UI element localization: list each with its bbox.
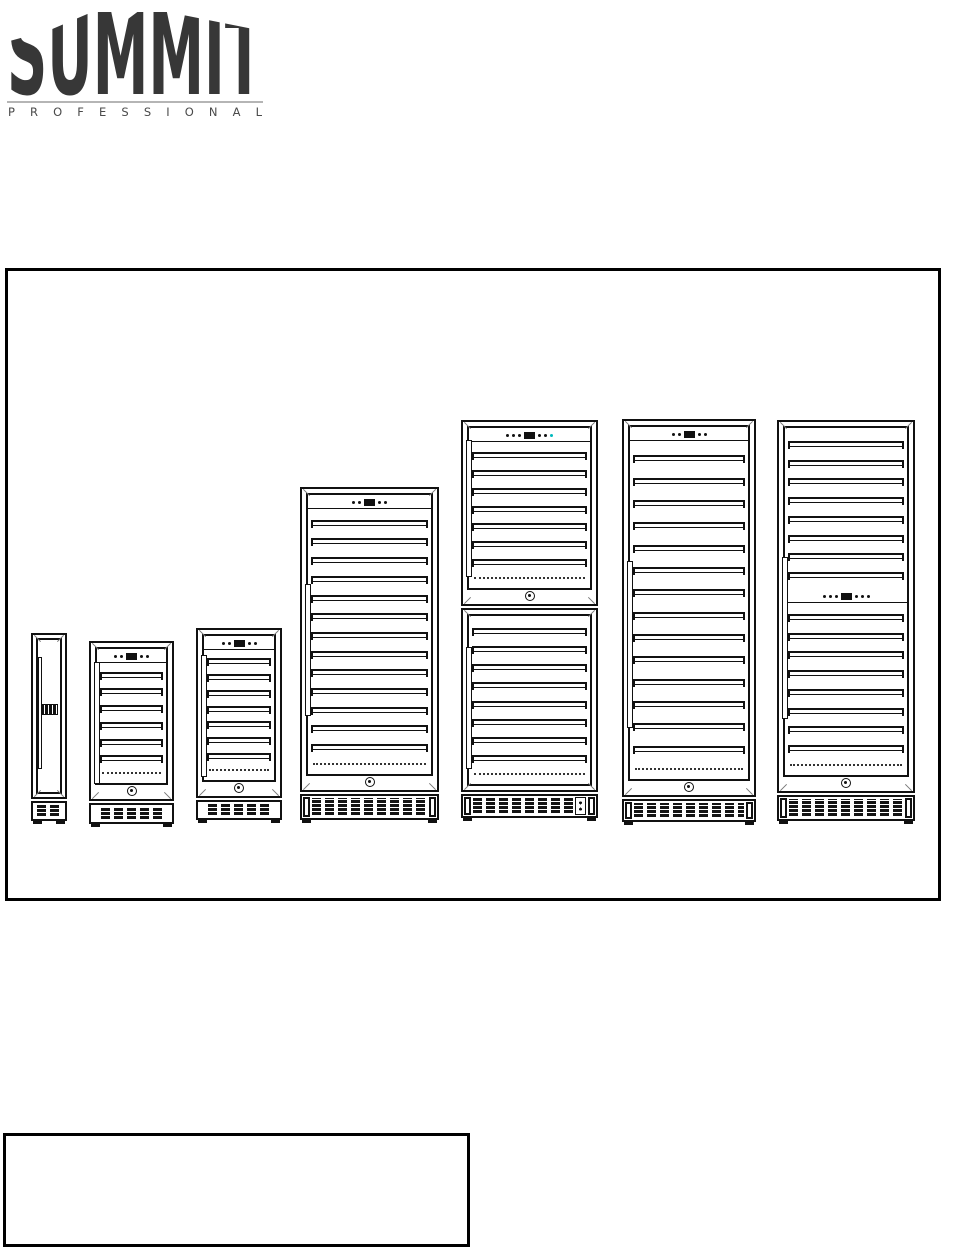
wine-shelf: [633, 567, 745, 575]
ventilation-base: [89, 803, 174, 824]
corner-bevel-line: [199, 789, 206, 796]
wine-shelf: [311, 725, 428, 733]
corner-bevel-line: [92, 792, 99, 799]
door-handle: [782, 557, 788, 719]
ventilation-base: [31, 801, 67, 821]
button-dot-icon: [823, 595, 826, 598]
wine-shelf: [207, 674, 271, 682]
button-dot-icon: [140, 655, 143, 658]
base-bracket: [780, 798, 787, 818]
glass-door-pane: [628, 425, 750, 781]
button-dot-icon: [352, 501, 355, 504]
foot: [198, 820, 207, 823]
wine-shelf: [472, 737, 587, 745]
button-dot-icon: [867, 595, 870, 598]
wine-shelf: [472, 488, 587, 496]
button-dot-icon: [855, 595, 858, 598]
corner-bevel-line: [780, 784, 787, 791]
button-dot-icon: [704, 433, 707, 436]
undercounter-wine-cellar: [196, 628, 282, 820]
wine-shelf: [311, 595, 428, 603]
ventilation-base: [196, 800, 282, 820]
control-panel: [630, 429, 748, 441]
wine-shelf: [311, 632, 428, 640]
door: [300, 487, 439, 792]
button-dot-icon: [254, 642, 257, 645]
vent-grille: [634, 803, 744, 818]
foot: [33, 821, 42, 824]
shelf-group: [207, 650, 271, 769]
display-icon: [524, 432, 535, 439]
fullsize-wine-cellar: [622, 419, 756, 822]
wine-shelf: [207, 658, 271, 666]
door: [31, 633, 67, 799]
wine-shelf: [311, 538, 428, 546]
wine-shelf: [472, 559, 587, 567]
logo-rule: [7, 101, 263, 103]
base-bracket: [464, 797, 471, 815]
control-panel: [785, 591, 907, 603]
wine-shelf: [788, 553, 904, 561]
button-dot-icon: [378, 501, 381, 504]
wine-shelf: [788, 614, 904, 622]
button-dot-icon: [678, 433, 681, 436]
corner-bevel-line: [746, 788, 753, 795]
shelf-group: [311, 509, 428, 763]
glass-door-pane: [95, 647, 168, 785]
wine-shelf: [633, 500, 745, 508]
bottle-row-line: [313, 763, 426, 772]
wine-shelf: [311, 557, 428, 565]
base-bracket: [905, 798, 912, 818]
wine-shelf: [633, 478, 745, 486]
wine-shelf: [311, 707, 428, 715]
wine-shelf: [472, 664, 587, 672]
corner-bevel-line: [272, 789, 279, 796]
wine-shelf: [788, 572, 904, 580]
button-dot-icon: [146, 655, 149, 658]
button-dot-icon: [248, 642, 251, 645]
wine-shelf: [788, 516, 904, 524]
ventilation-base: [622, 799, 756, 822]
door-handle: [94, 662, 100, 784]
wine-shelf: [633, 701, 745, 709]
product-lineup-panel: [5, 268, 941, 901]
door: [461, 608, 598, 792]
wine-shelf: [633, 723, 745, 731]
shelf-group: [472, 618, 587, 773]
wine-shelf: [472, 470, 587, 478]
wine-shelf: [633, 612, 745, 620]
wine-shelf: [311, 613, 428, 621]
button-dot-icon: [222, 642, 225, 645]
foot: [779, 821, 788, 824]
wine-shelf: [311, 651, 428, 659]
door-lock-icon: [365, 777, 375, 787]
vent-grille: [312, 798, 427, 816]
wine-shelf: [472, 523, 587, 531]
wine-shelf: [788, 497, 904, 505]
shelf-group: [100, 663, 163, 772]
wine-shelf: [633, 589, 745, 597]
glass-door-pane: [306, 493, 433, 776]
shelf-group: [472, 442, 587, 577]
glass-door-pane: [467, 426, 592, 590]
wine-shelf: [788, 633, 904, 641]
button-dot-icon: [861, 595, 864, 598]
foot: [271, 820, 280, 823]
wine-shelf: [472, 452, 587, 460]
wine-shelf: [100, 672, 163, 680]
bottle-row-line: [635, 768, 743, 777]
ventilation-base: [300, 794, 439, 820]
wine-shelf: [633, 634, 745, 642]
midsize-wine-cellar: [300, 487, 439, 820]
wine-shelf: [788, 441, 904, 449]
wine-shelf: [100, 688, 163, 696]
wine-shelf: [788, 726, 904, 734]
wine-shelf: [100, 705, 163, 713]
corner-bevel-line: [164, 792, 171, 799]
vent-grille: [208, 804, 270, 816]
compact-wine-cooler: [89, 641, 174, 824]
wine-shelf: [472, 628, 587, 636]
wine-shelf: [472, 541, 587, 549]
wine-shelf: [472, 719, 587, 727]
corner-bevel-line: [303, 783, 310, 790]
door-handle: [466, 440, 472, 577]
door: [461, 420, 598, 606]
wine-shelf: [100, 722, 163, 730]
button-dot-icon: [384, 501, 387, 504]
display-icon: [126, 653, 137, 660]
door-lock-icon: [127, 786, 137, 796]
wine-shelf: [472, 701, 587, 709]
wine-shelf: [472, 755, 587, 763]
wine-shelf: [472, 646, 587, 654]
wine-shelf: [311, 669, 428, 677]
foot: [745, 822, 754, 825]
base-bracket: [746, 802, 753, 819]
corner-bevel-line: [588, 597, 595, 604]
wine-shelf: [788, 651, 904, 659]
door-handle: [201, 655, 207, 777]
foot: [56, 821, 65, 824]
display-icon: [364, 499, 375, 506]
logo-subtitle: P R O F E S S I O N A L: [8, 105, 263, 119]
door-handle: [38, 657, 42, 769]
fullsize-dual-section-wine-cellar: [777, 420, 915, 821]
button-dot-icon: [698, 433, 701, 436]
door-lock-icon: [525, 591, 535, 601]
wine-shelf: [788, 670, 904, 678]
vent-grille: [473, 798, 586, 814]
base-bracket: [429, 797, 436, 817]
wine-shelf: [633, 522, 745, 530]
wine-shelf: [311, 744, 428, 752]
base-bracket: [588, 797, 595, 815]
door-handle: [305, 584, 311, 716]
summit-logo: SUMMIT P R O F E S S I O N A L: [6, 4, 268, 122]
glass-door-pane: [783, 426, 909, 777]
wine-shelf: [472, 506, 587, 514]
wine-shelf: [472, 682, 587, 690]
door-handle: [466, 647, 472, 769]
door-lock-icon: [841, 778, 851, 788]
door-lock-icon: [234, 783, 244, 793]
bottle-row-line: [790, 764, 902, 773]
glass-door-pane: [467, 614, 592, 786]
corner-bevel-line: [464, 783, 471, 790]
bottle-row-line: [474, 577, 585, 586]
door: [622, 419, 756, 797]
bottle-row-line: [102, 772, 161, 781]
display-icon: [841, 593, 852, 600]
shelf-group: [788, 430, 904, 591]
door-handle: [627, 561, 633, 728]
door: [196, 628, 282, 798]
corner-bevel-line: [429, 783, 436, 790]
door: [777, 420, 915, 793]
bottle-row-line: [474, 773, 585, 782]
foot: [904, 821, 913, 824]
button-dot-icon: [114, 655, 117, 658]
control-panel: [308, 497, 431, 509]
wine-shelf: [311, 688, 428, 696]
button-dot-icon: [228, 642, 231, 645]
button-dot-icon: [544, 434, 547, 437]
display-icon: [684, 431, 695, 438]
control-panel: [469, 430, 590, 442]
wine-shelf: [633, 746, 745, 754]
wine-shelf: [207, 721, 271, 729]
wine-shelf: [788, 460, 904, 468]
logo-title: SUMMIT: [7, 4, 263, 121]
corner-bevel-line: [905, 784, 912, 791]
button-dot-icon: [358, 501, 361, 504]
wine-shelf: [311, 520, 428, 528]
button-dot-icon: [506, 434, 509, 437]
button-dot-icon: [829, 595, 832, 598]
wine-shelf: [100, 739, 163, 747]
slim-column-wine-cooler: [31, 633, 67, 821]
notes-panel: [3, 1133, 470, 1247]
base-bracket: [625, 802, 632, 819]
button-dot-icon: [518, 434, 521, 437]
vent-grille: [789, 799, 903, 817]
vent-grille: [101, 807, 162, 820]
wine-shelf: [207, 753, 271, 761]
ventilation-base: [461, 794, 598, 818]
shelf-group: [633, 441, 745, 768]
control-panel: [204, 638, 274, 650]
dual-zone-wine-cellar: [461, 420, 598, 818]
summit-logo-svg: SUMMIT P R O F E S S I O N A L: [6, 4, 268, 122]
button-dot-icon: [120, 655, 123, 658]
base-switch-box: [575, 797, 586, 815]
control-panel: [97, 651, 166, 663]
wine-shelf: [207, 690, 271, 698]
button-dot-icon: [672, 433, 675, 436]
wine-shelf: [633, 545, 745, 553]
corner-bevel-line: [625, 788, 632, 795]
foot: [428, 820, 437, 823]
button-dot-icon: [538, 434, 541, 437]
wine-shelf: [633, 679, 745, 687]
vent-grille: [37, 805, 61, 817]
glass-door-pane: [202, 634, 276, 782]
button-dot-icon: [835, 595, 838, 598]
wine-shelf: [207, 737, 271, 745]
wine-shelf: [788, 689, 904, 697]
door: [89, 641, 174, 801]
wine-shelf: [311, 576, 428, 584]
wine-shelf: [100, 755, 163, 763]
foot: [163, 824, 172, 827]
temperature-display: [40, 704, 58, 715]
wine-shelf: [788, 478, 904, 486]
foot: [91, 824, 100, 827]
foot: [587, 818, 596, 821]
shelf-group: [788, 603, 904, 764]
ventilation-base: [777, 795, 915, 821]
foot: [463, 818, 472, 821]
door-lock-icon: [684, 782, 694, 792]
wine-shelf: [788, 535, 904, 543]
foot: [624, 822, 633, 825]
power-led-icon: [550, 434, 553, 437]
base-bracket: [303, 797, 310, 817]
bottle-row-line: [209, 769, 269, 778]
wine-shelf: [633, 656, 745, 664]
wine-shelf: [788, 745, 904, 753]
display-icon: [234, 640, 245, 647]
corner-bevel-line: [464, 597, 471, 604]
wine-shelf: [633, 455, 745, 463]
wine-shelf: [788, 708, 904, 716]
button-dot-icon: [512, 434, 515, 437]
foot: [302, 820, 311, 823]
wine-shelf: [207, 706, 271, 714]
